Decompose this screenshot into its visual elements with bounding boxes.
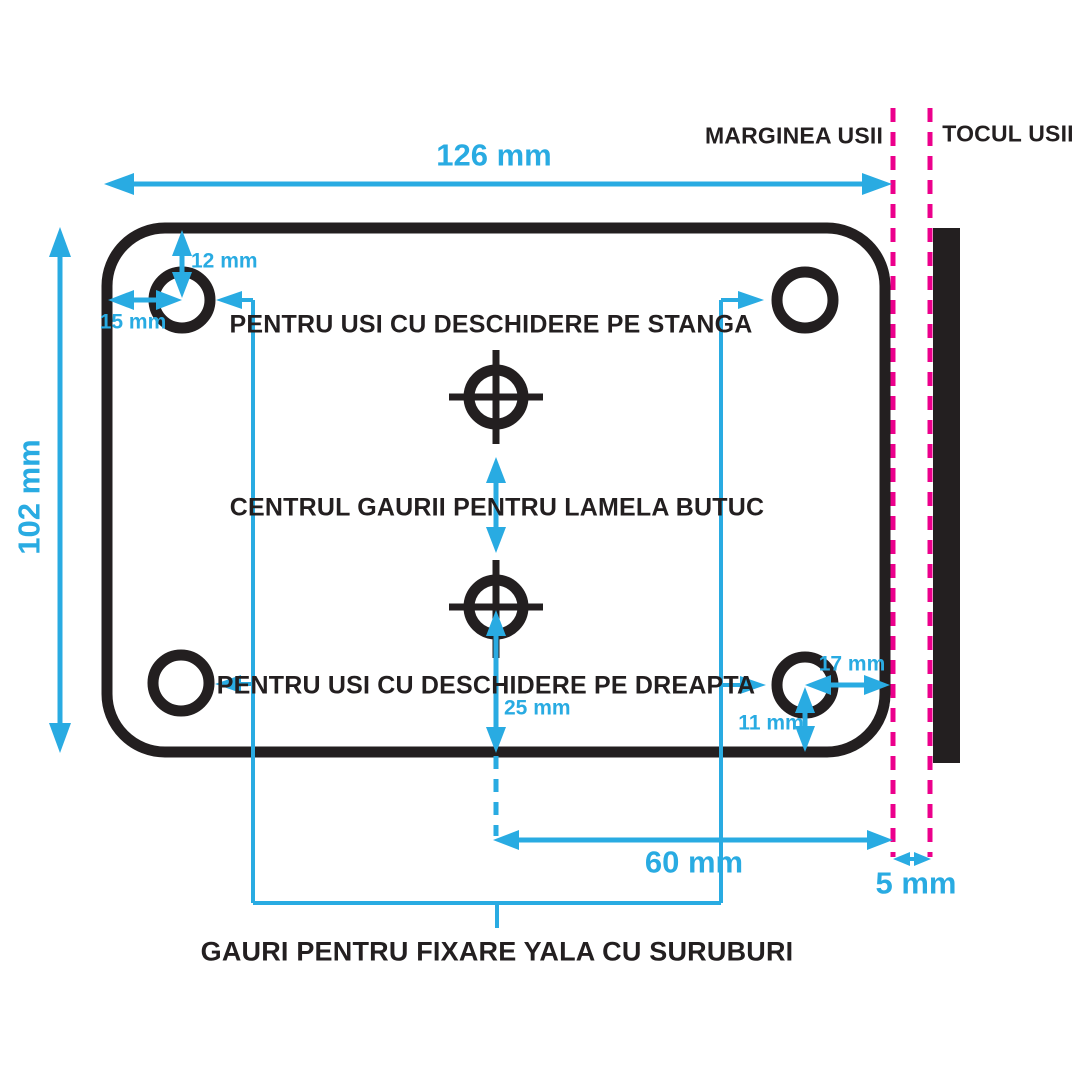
- dim-126-label: 126 mm: [436, 140, 551, 171]
- cylinder-hole-center-label: CENTRUL GAURII PENTRU LAMELA BUTUC: [230, 496, 765, 521]
- dim-5-label: 5 mm: [876, 868, 957, 899]
- dim-12-label: 12 mm: [191, 251, 258, 272]
- arrow-102-down: [49, 723, 71, 753]
- arrow-gap-up: [486, 457, 506, 483]
- arrow-102-up: [49, 227, 71, 257]
- arrow-126-left: [104, 173, 134, 195]
- arrow-15-right: [156, 290, 182, 310]
- right-opening-doors-label: PENTRU USI CU DESCHIDERE PE DREAPTA: [217, 674, 756, 699]
- arrow-11-up: [795, 687, 815, 713]
- dim-25-label: 25 mm: [504, 698, 571, 719]
- arrow-60-right: [867, 830, 893, 850]
- arrow-5-left: [893, 852, 910, 866]
- cylinder-crosshair-top: [449, 350, 543, 444]
- dim-15-label: 15 mm: [100, 312, 167, 333]
- dim-60-label: 60 mm: [645, 847, 743, 878]
- arrow-126-right: [862, 173, 892, 195]
- screw-holes-label: GAURI PENTRU FIXARE YALA CU SURUBURI: [201, 939, 794, 966]
- door-edge-label: MARGINEA USII: [705, 125, 883, 148]
- arrow-leader-top-left: [216, 291, 242, 309]
- door-frame-label: TOCUL USII: [942, 123, 1074, 146]
- screw-hole-bottom-left: [153, 655, 209, 711]
- arrow-25-up: [486, 610, 506, 636]
- arrow-17-left: [805, 675, 831, 695]
- arrow-12-up: [172, 230, 192, 256]
- dim-11-label: 11 mm: [738, 713, 803, 734]
- arrow-leader-top-right: [738, 291, 764, 309]
- door-edge-lines: [893, 108, 930, 857]
- dimension-lines: [60, 184, 918, 928]
- left-opening-doors-label: PENTRU USI CU DESCHIDERE PE STANGA: [229, 313, 752, 338]
- arrow-12-down: [172, 272, 192, 298]
- door-frame-bar: [933, 228, 960, 763]
- dim-17-label: 17 mm: [819, 654, 886, 675]
- dim-102-label: 102 mm: [14, 439, 45, 554]
- mounting-diagram-canvas: 126 mm 102 mm 12 mm 15 mm 25 mm 60 mm 17…: [0, 0, 1080, 1080]
- arrow-gap-down: [486, 527, 506, 553]
- screw-hole-top-right: [777, 272, 833, 328]
